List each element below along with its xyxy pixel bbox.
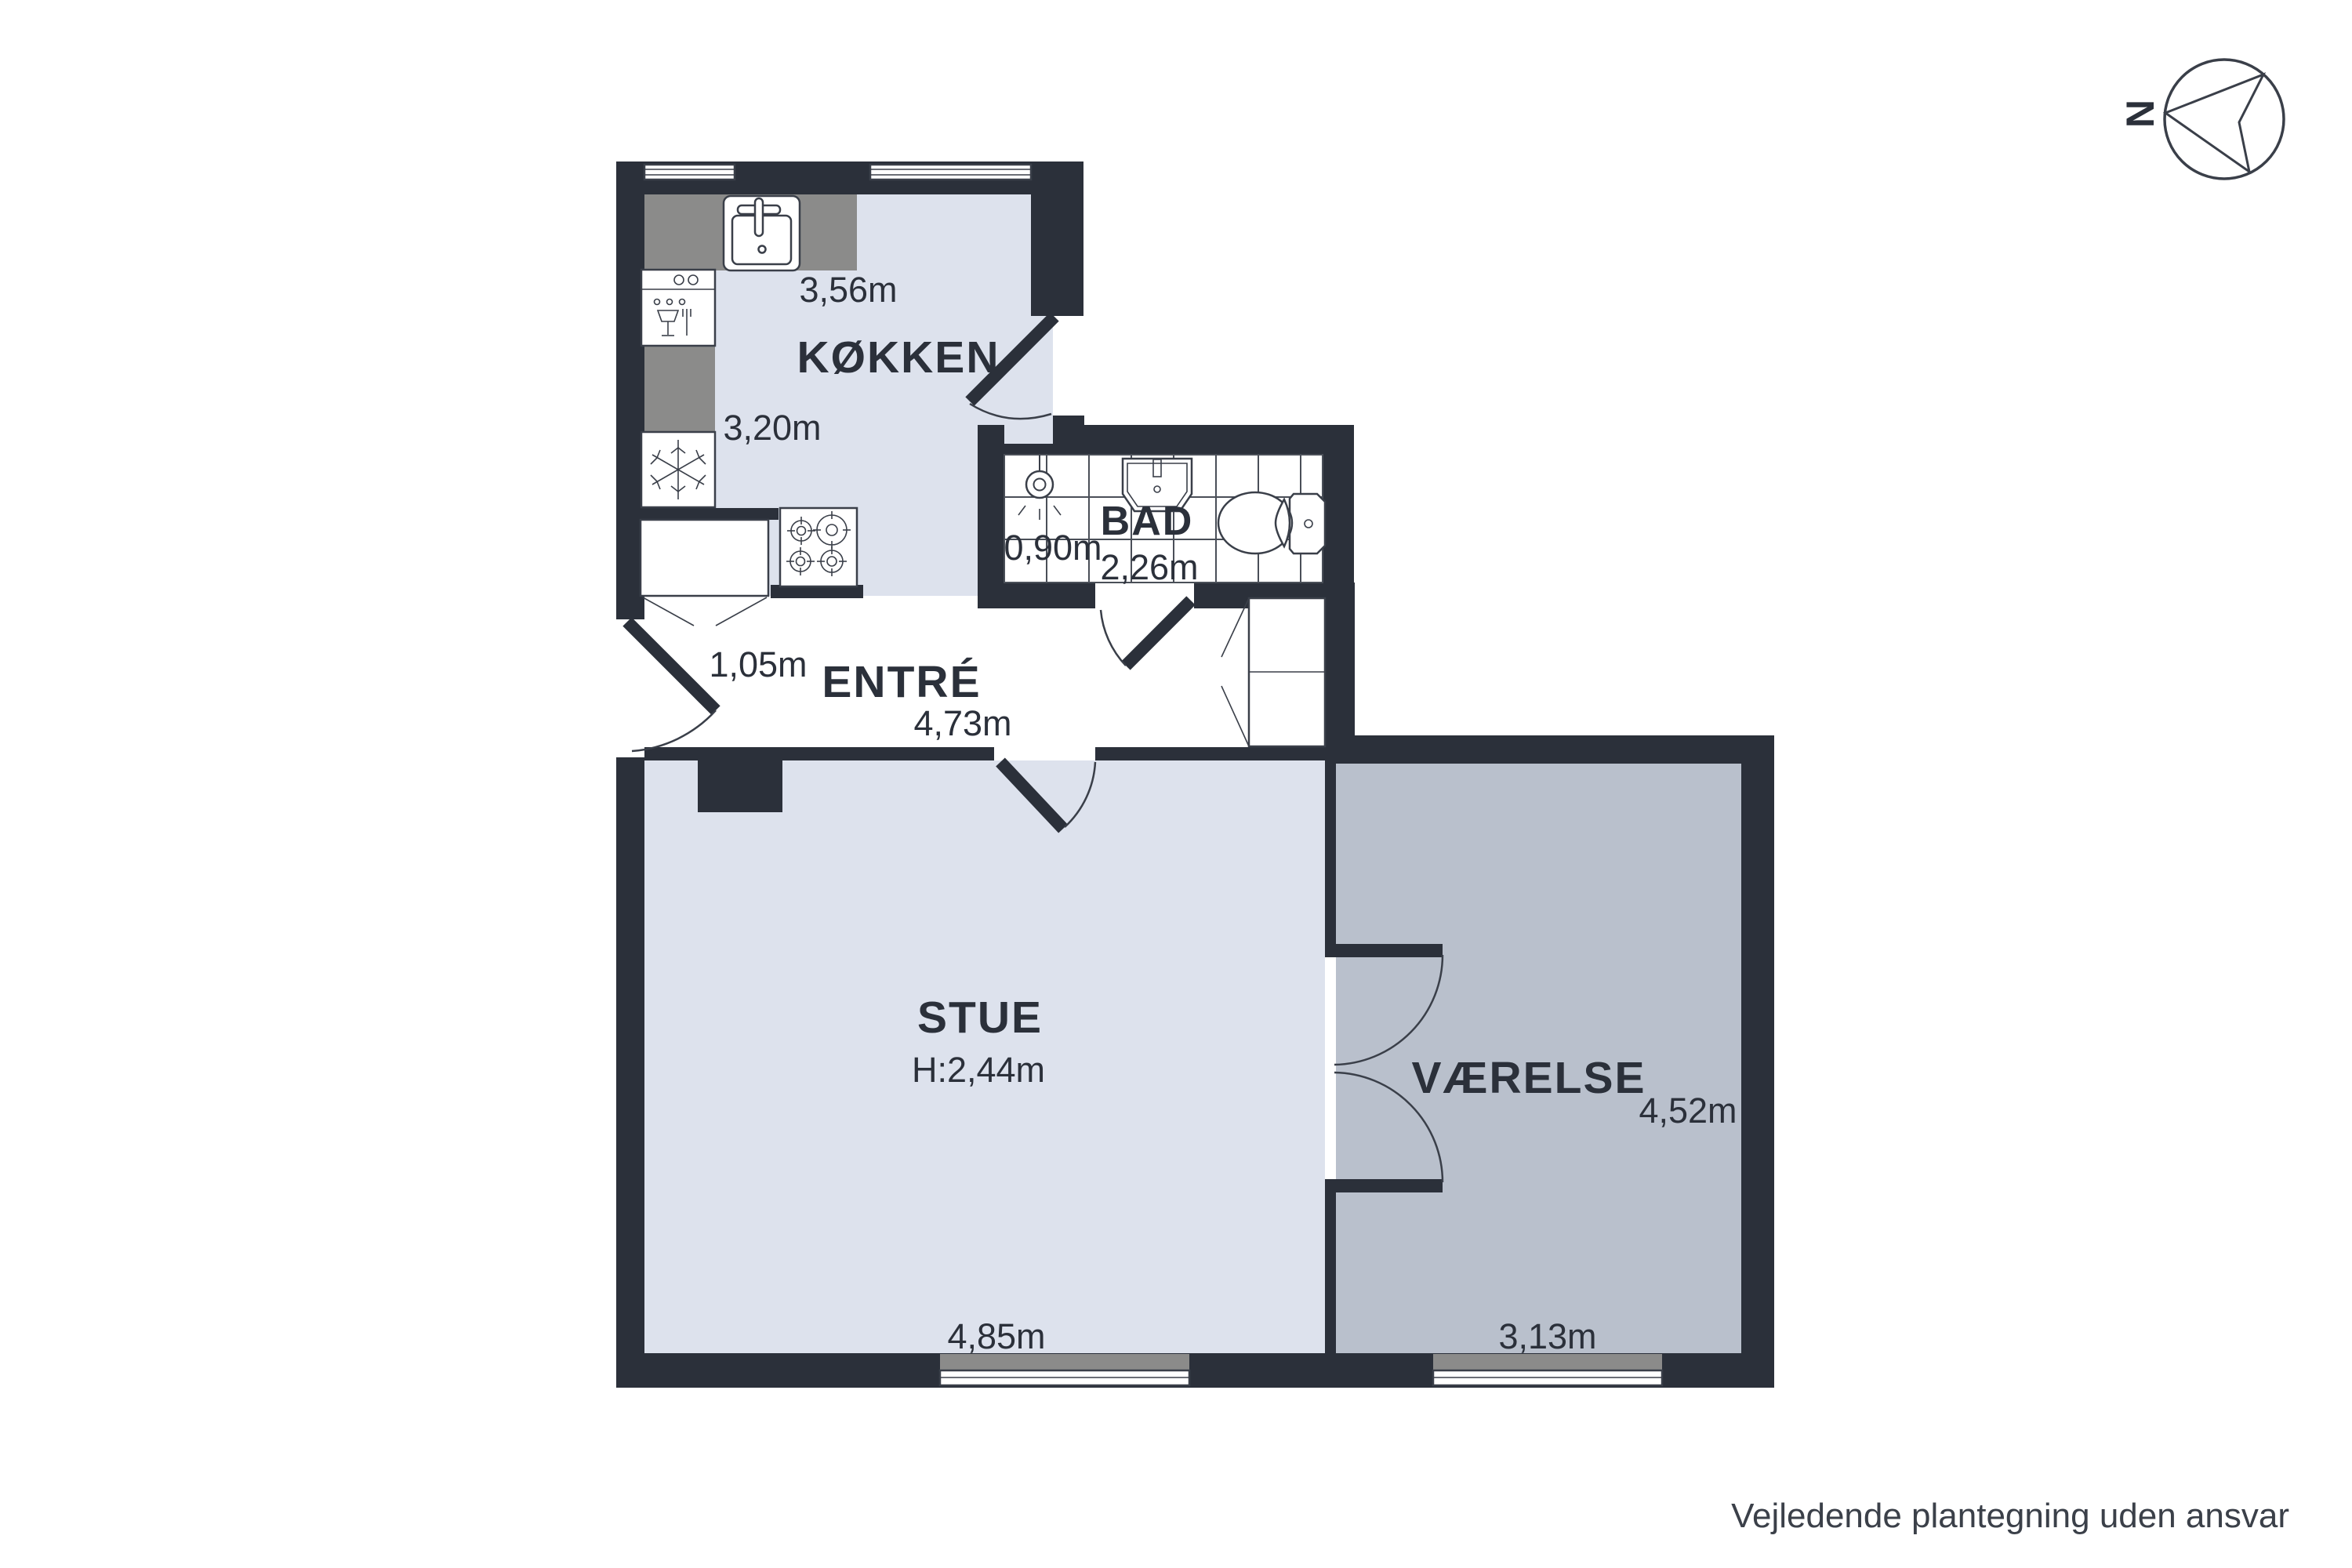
bath-door [1101,601,1191,666]
sink-icon [724,196,800,270]
double-door-stub-top [1336,944,1443,957]
kitchen-depth-dim: 3,20m [723,408,821,448]
chimney-block [698,760,782,812]
living-label: STUE [917,993,1043,1043]
bath-width-dim: 2,26m [1100,547,1198,587]
stove-icon [780,508,857,586]
entry-door [627,622,716,751]
bedroom-depth-dim: 4,52m [1639,1091,1737,1131]
compass-icon: N [2118,60,2284,179]
window-bedroom [1433,1354,1662,1385]
living-width-dim: 4,85m [947,1316,1045,1356]
double-door-stub-bottom [1336,1179,1443,1192]
living-ceiling-dim: H:2,44m [912,1050,1045,1090]
dishwasher-icon [641,270,715,346]
floorplan: KØKKEN 3,56m 3,20m BAD 0,90m 2,26m ENTRÉ… [0,0,2352,1568]
window-kitchen-left [644,165,735,180]
hall-label: ENTRÉ [822,657,981,707]
window-living [940,1354,1189,1385]
hall-door-dim: 1,05m [709,644,807,684]
kitchen-label: KØKKEN [797,332,1000,383]
wardrobe-icon [641,520,768,626]
freezer-icon [641,432,715,507]
bath-label: BAD [1101,499,1194,544]
hall-width-dim: 4,73m [913,703,1011,743]
window-kitchen-right [870,165,1031,180]
bedroom-label: VÆRELSE [1411,1053,1646,1103]
kitchen-width-dim: 3,56m [799,270,897,310]
disclaimer-text: Vejledende plantegning uden ansvar [1731,1497,2289,1535]
hall-closet-icon [1221,598,1325,746]
toilet-icon [1218,492,1325,554]
compass-north-label: N [2118,100,2162,128]
bath-depth-dim: 0,90m [1004,528,1102,568]
bedroom-width-dim: 3,13m [1498,1316,1596,1356]
